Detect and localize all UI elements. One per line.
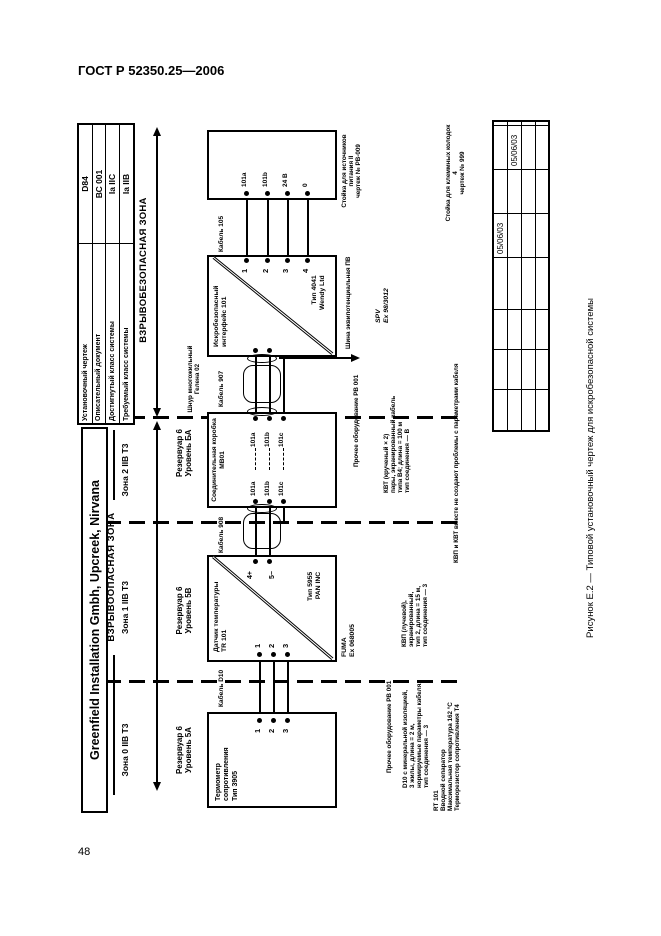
installation-drawing: Greenfield Installation Gmbh, Upcreek, N… <box>75 120 470 815</box>
terminal-dot <box>257 718 262 723</box>
reservoir-1-label: Резервуар 6 Уровень 5В <box>175 558 193 663</box>
note-rt101-line4: Терморезистор сопротивления Т4 <box>454 704 461 811</box>
tr101-type-line1: Тип 5955 <box>307 572 314 601</box>
page-number: 48 <box>78 846 90 859</box>
zone-2-label: Зона 2 IIB T3 <box>121 420 131 520</box>
interface-name: Искробезопасный интерфейс 101 <box>213 286 229 347</box>
rack-label-line2: питания II <box>348 156 355 187</box>
titleblock-date-1: 05/06/03 <box>496 223 505 254</box>
screen-entry-symbol <box>247 407 277 416</box>
rtd-line1: Термометр <box>215 763 222 801</box>
terminal-dot <box>285 191 290 196</box>
rtd-text: Термометр сопротивления Тип 3905 <box>215 747 240 801</box>
tr101-type-line2: PAN INC <box>315 572 322 599</box>
interface-terminal-2: 2 <box>262 269 271 273</box>
cable-907-screen-symbol <box>243 365 281 403</box>
safe-zone-arrow <box>156 132 158 413</box>
interface-terminal-1: 1 <box>241 269 250 273</box>
company-name: Greenfield Installation Gmbh, Upcreek, N… <box>88 429 102 811</box>
rack-label-line1: Стойка для источников <box>341 134 348 207</box>
interface-name-line1: Искробезопасный <box>213 286 220 347</box>
interface-type-line1: Тип 4041 <box>311 275 318 304</box>
info-value: ВС 001 <box>93 125 107 243</box>
info-value: Ia IIC <box>106 125 120 243</box>
terminal-dot <box>271 718 276 723</box>
multicore-note-line1: Шнур многожильный <box>187 346 194 413</box>
note-kvp: КВП (лучевой), экранированный, тип 2, дл… <box>401 584 429 647</box>
reservoir-0-line1: Резервуар 6 <box>175 726 184 774</box>
doc-header: ГОСТ Р 52350.25—2006 <box>78 64 224 79</box>
tr101-terminal-3: 3 <box>282 644 291 648</box>
mb01-right-101b: 101b <box>264 432 271 447</box>
wire-907-screen <box>283 358 285 414</box>
rtd-line3: Тип 3905 <box>232 771 239 801</box>
mb01-right-101a: 101a <box>250 433 257 447</box>
rack-far-label-line2: чертеж № 999 <box>459 152 466 195</box>
note-kvp-line4: тип соединения — 3 <box>422 584 429 647</box>
note-kvt-line1: КВТ (крученый × 2) <box>383 434 390 493</box>
info-label: Установочный чертеж <box>79 243 93 423</box>
arrow-head-icon <box>153 127 161 136</box>
arrow-head-icon <box>153 782 161 791</box>
note-kvt-line4: тип соединения — В <box>404 429 411 493</box>
safe-area-label: ВЗРЫВОБЕЗОПАСНАЯ ЗОНА <box>139 125 150 415</box>
mb01-right-101c: 101c <box>278 433 285 447</box>
reservoir-2-label: Резервуар 6 Уровень БА <box>175 413 193 493</box>
wire-105-1 <box>246 198 248 260</box>
terminal-dot <box>281 416 286 421</box>
hazard-zone-arrow <box>156 427 158 785</box>
terminal-dot <box>257 652 262 657</box>
terminal-dot <box>285 258 290 263</box>
terminal-dot <box>253 348 258 353</box>
terminal-dot <box>253 559 258 564</box>
mb01-link <box>283 448 284 470</box>
terminal-dot <box>305 258 310 263</box>
wire-d10-1 <box>259 658 261 720</box>
note-d10-line3: нормируемые параметры кабеля, <box>416 682 423 788</box>
rack-terminal-24v: 24 В <box>282 173 289 187</box>
rack-terminal-101a: 101a <box>241 173 248 187</box>
note-kvt-line3: типа В4; длина = 100 м <box>397 422 404 493</box>
interface-name-line2: интерфейс 101 <box>221 297 228 347</box>
note-rt101-line2: Вводной сепаратор <box>440 749 447 811</box>
titleblock-col-line <box>494 169 548 170</box>
terminal-dot <box>253 416 258 421</box>
reservoir-0-label: Резервуар 6 Уровень 5А <box>175 700 193 800</box>
terminal-dot <box>267 559 272 564</box>
interface-type: Тип 4041 Wendy Ltd <box>311 275 327 310</box>
reservoir-1-line2: Уровень 5В <box>184 588 193 634</box>
note-d10-line1: D10 с минеральной изоляцией, <box>402 690 409 788</box>
info-label: Требуемый класс системы <box>120 243 134 423</box>
rack-label: Стойка для источников питания II чертеж … <box>341 123 362 219</box>
mb01-name: Соединительная коробка МВ01 <box>211 414 227 506</box>
wire-105-3 <box>287 198 289 260</box>
note-rt101: RT 101 Вводной сепаратор Максимальная те… <box>433 702 461 811</box>
info-value: D84 <box>79 125 93 243</box>
rack-box <box>207 130 337 200</box>
rack-far-label: Стойка для клеммных колодок 4 чертеж № 9… <box>445 123 466 223</box>
terminal-dot <box>285 652 290 657</box>
company-box: Greenfield Installation Gmbh, Upcreek, N… <box>81 427 108 813</box>
terminal-dot <box>244 191 249 196</box>
tr101-type: Тип 5955 PAN INC <box>307 572 323 601</box>
wire-105-4 <box>307 198 309 260</box>
reservoir-2-line2: Уровень БА <box>184 430 193 477</box>
tr101-cert-line2: Ex 068005 <box>349 624 356 657</box>
cable-908-screen-symbol <box>243 513 281 549</box>
terminal-dot <box>265 191 270 196</box>
terminal-dot <box>281 499 286 504</box>
titleblock-col-line <box>494 349 548 350</box>
note-kvt: КВТ (крученый × 2) пары, экранированный … <box>383 396 411 493</box>
mb01-name-line1: Соединительная коробка <box>211 418 218 502</box>
terminal-dot <box>285 718 290 723</box>
info-label: Достигнутый класс системы <box>106 243 120 423</box>
tr101-name-line1: Датчик температуры <box>213 582 220 652</box>
note-d10-line2: 3 жилы, длина = 2 м, <box>409 724 416 788</box>
tr101-name-line2: TR 101 <box>221 630 228 652</box>
rack-terminal-101b: 101b <box>262 172 269 187</box>
note-rt101-line3: Максимальная температура 162 °С <box>447 702 454 811</box>
multicore-note-line2: Гелена 02 <box>194 364 201 394</box>
title-block: 05/06/03 05/06/03 <box>492 120 550 432</box>
note-other-equipment-1: Прочее оборудование РВ 001 <box>353 375 360 467</box>
tr101-terminal-1: 1 <box>254 644 263 648</box>
rack-label-line3: чертеж № РВ-009 <box>355 144 362 198</box>
arrow-head-icon <box>153 408 161 417</box>
arrow-head-icon <box>153 421 161 430</box>
interface-type-line2: Wendy Ltd <box>319 275 326 310</box>
wire-d10-2 <box>273 658 275 720</box>
cable-d10-label: Кабель D10 <box>218 670 225 707</box>
note-kvp-line1: КВП (лучевой), <box>401 600 408 647</box>
note-kvt-line2: пары, экранированный кабель <box>390 396 397 493</box>
arrow-head-icon <box>351 354 360 362</box>
cable-908-label: Кабель 908 <box>218 517 225 553</box>
note-rt101-line1: RT 101 <box>433 790 440 811</box>
tr101-cert-line1: FUMA <box>341 637 348 657</box>
rtd-terminal-2: 2 <box>268 729 277 733</box>
multicore-note: Шнур многожильный Гелена 02 <box>187 339 201 419</box>
zone-1-label: Зона 1 IIB T3 <box>121 555 131 660</box>
zone-boundary-1-2 <box>105 522 465 525</box>
mb01-name-line2: МВ01 <box>219 451 226 469</box>
terminal-dot <box>244 258 249 263</box>
rack-far-label-line1: Стойка для клеммных колодок 4 <box>445 125 459 222</box>
cable-105-label: Кабель 105 <box>218 216 225 252</box>
interface-cert: SPV Ex 98/3012 <box>375 288 392 323</box>
zone-0-label: Зона 0 IIB T3 <box>121 695 131 805</box>
rtd-terminal-3: 3 <box>282 729 291 733</box>
terminal-dot <box>267 416 272 421</box>
mb01-left-101b: 101b <box>264 481 271 496</box>
tr101-terminal-4plus: 4+ <box>247 571 255 579</box>
tr101-cert: FUMA Ex 068005 <box>341 624 357 657</box>
tr101-terminal-2: 2 <box>268 644 277 648</box>
titleblock-col-line <box>494 389 548 390</box>
reservoir-0-line2: Уровень 5А <box>184 727 193 773</box>
info-label: Описательный документ <box>93 243 107 423</box>
mb01-link <box>255 448 256 470</box>
terminal-dot <box>305 191 310 196</box>
titleblock-col-line <box>494 309 548 310</box>
terminal-dot <box>253 499 258 504</box>
tr101-name: Датчик температуры TR 101 <box>213 582 229 652</box>
cable-907-label: Кабель 907 <box>218 371 225 407</box>
rack-terminal-0: 0 <box>302 183 309 187</box>
terminal-dot <box>267 348 272 353</box>
tr101-terminal-5minus: 5− <box>269 571 277 579</box>
note-other-equipment-2: Прочее оборудование РВ 001 <box>386 681 393 773</box>
mb01-link <box>269 448 270 470</box>
rtd-line2: сопротивления <box>223 747 230 801</box>
screen-entry-symbol <box>247 504 277 513</box>
interface-cert-line2: Ex 98/3012 <box>383 288 390 323</box>
titleblock-date-2: 05/06/03 <box>510 135 519 166</box>
titleblock-col-line <box>494 125 548 126</box>
figure-caption: Рисунок Е.2 — Типовой установочный черте… <box>586 268 597 668</box>
ground-wire <box>279 358 351 360</box>
interface-terminal-4: 4 <box>302 269 311 273</box>
equipotential-bus-label: Шина эквипотенциальная ПВ <box>345 257 352 349</box>
note-combined-cables: КВП и КВТ вместе не создают проблемы с п… <box>453 363 460 563</box>
interface-terminal-3: 3 <box>282 269 291 273</box>
terminal-dot <box>265 258 270 263</box>
note-kvp-line3: тип 2, длина = 15 м, <box>415 586 422 647</box>
screen-entry-symbol <box>247 354 277 363</box>
wire-105-2 <box>267 198 269 260</box>
interface-cert-line1: SPV <box>375 309 382 323</box>
note-kvp-line2: экранированный, <box>408 592 415 647</box>
info-value: Ia IIB <box>120 125 134 243</box>
mb01-left-101c: 101c <box>278 482 285 496</box>
hazard-area-label: ВЗРЫВООПАСНАЯ ЗОНА <box>107 427 118 727</box>
note-d10: D10 с минеральной изоляцией, 3 жилы, дли… <box>402 682 430 788</box>
terminal-dot <box>267 499 272 504</box>
titleblock-col-line <box>494 213 548 214</box>
mb01-left-101a: 101a <box>250 482 257 496</box>
rtd-terminal-1: 1 <box>254 729 263 733</box>
reservoir-2-line1: Резервуар 6 <box>175 429 184 477</box>
note-d10-line4: тип соединения — 3 <box>423 725 430 788</box>
info-table: Установочный чертеж D84 Описательный док… <box>77 123 135 425</box>
figure-caption-strip: Рисунок Е.2 — Типовой установочный черте… <box>584 268 602 668</box>
reservoir-1-line1: Резервуар 6 <box>175 587 184 635</box>
titleblock-col-line <box>494 257 548 258</box>
terminal-dot <box>271 652 276 657</box>
wire-d10-3 <box>287 658 289 720</box>
